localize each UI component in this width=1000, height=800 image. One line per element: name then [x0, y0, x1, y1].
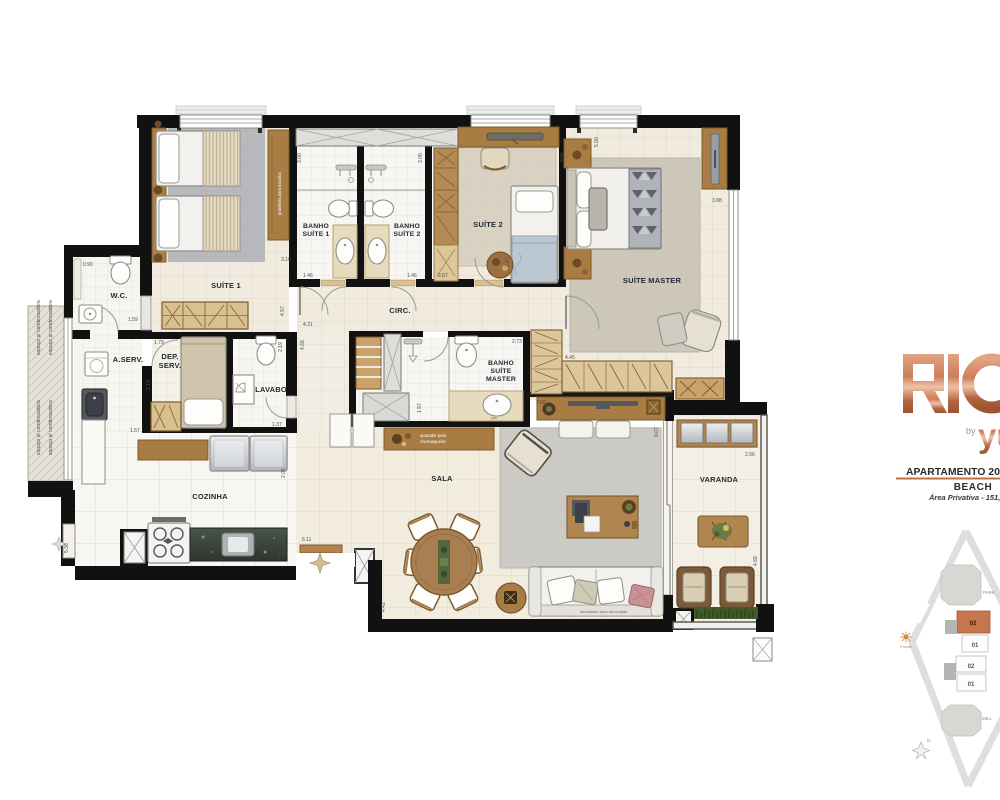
svg-text:Área Privativa - 151,4: Área Privativa - 151,4 — [928, 493, 1000, 502]
svg-text:2.73: 2.73 — [512, 339, 522, 345]
svg-text:MILL: MILL — [982, 716, 993, 721]
svg-text:1.79: 1.79 — [154, 340, 164, 346]
svg-text:3.05: 3.05 — [418, 153, 424, 163]
svg-text:2.19: 2.19 — [146, 380, 152, 390]
svg-text:4.45: 4.45 — [565, 355, 575, 361]
svg-text:BANHO: BANHO — [394, 223, 420, 230]
svg-text:1.46: 1.46 — [407, 273, 417, 279]
svg-text:churrasqueira: churrasqueira — [420, 439, 446, 444]
svg-text:BANHO: BANHO — [488, 360, 514, 367]
svg-text:2.87: 2.87 — [505, 257, 511, 267]
svg-text:pia: pia — [491, 415, 497, 420]
svg-text:CIRC.: CIRC. — [389, 306, 410, 315]
svg-text:5.90: 5.90 — [594, 137, 600, 147]
svg-text:SALA: SALA — [431, 474, 453, 483]
svg-text:Poente: Poente — [900, 645, 912, 649]
svg-text:1.97: 1.97 — [417, 403, 423, 413]
svg-text:SUÍTE 1: SUÍTE 1 — [302, 229, 329, 238]
svg-text:4.42: 4.42 — [381, 602, 387, 612]
svg-text:2.05: 2.05 — [281, 468, 287, 478]
svg-text:3.56: 3.56 — [560, 152, 566, 162]
svg-text:espaço p/ condensadora: espaço p/ condensadora — [36, 300, 42, 355]
svg-text:SUÍTE 2: SUÍTE 2 — [473, 220, 503, 229]
svg-text:01: 01 — [968, 682, 975, 688]
svg-text:aparador para: aparador para — [420, 433, 447, 438]
svg-text:0.90: 0.90 — [83, 262, 93, 268]
svg-text:A.SERV.: A.SERV. — [113, 355, 144, 364]
svg-text:1.59: 1.59 — [128, 317, 138, 323]
svg-text:PARK: PARK — [983, 590, 995, 595]
svg-text:espaço p/ condensadora: espaço p/ condensadora — [48, 400, 54, 455]
svg-text:2.08: 2.08 — [536, 400, 546, 406]
svg-text:DEP.: DEP. — [161, 352, 178, 361]
svg-text:W.C.: W.C. — [110, 291, 127, 300]
svg-text:3.17: 3.17 — [278, 552, 288, 558]
svg-text:2.67: 2.67 — [438, 273, 448, 279]
svg-text:02: 02 — [970, 621, 977, 627]
svg-text:SERV.: SERV. — [159, 361, 182, 370]
svg-text:4.69: 4.69 — [753, 556, 759, 566]
svg-text:01: 01 — [972, 643, 979, 649]
svg-text:SUÍTE: SUÍTE — [490, 366, 511, 375]
svg-text:APARTAMENTO 2001 E: APARTAMENTO 2001 E — [906, 467, 1000, 478]
svg-text:by: by — [966, 426, 976, 436]
svg-text:LAVABO: LAVABO — [255, 385, 287, 394]
svg-text:4.57: 4.57 — [280, 306, 286, 316]
svg-text:espaço p/ condensadora: espaço p/ condensadora — [48, 300, 54, 355]
svg-text:2.06: 2.06 — [745, 452, 755, 458]
svg-text:4.31: 4.31 — [303, 322, 313, 328]
svg-text:2.19: 2.19 — [278, 342, 284, 352]
svg-text:espaço p/ condensadora: espaço p/ condensadora — [36, 400, 42, 455]
svg-text:1.46: 1.46 — [303, 273, 313, 279]
svg-text:BANHO: BANHO — [303, 223, 329, 230]
svg-text:BEACH: BEACH — [954, 482, 993, 493]
svg-text:3.16: 3.16 — [281, 257, 291, 263]
svg-text:4.68: 4.68 — [300, 340, 306, 350]
svg-text:yu: yu — [978, 417, 1000, 454]
svg-text:1.57: 1.57 — [130, 428, 140, 434]
svg-text:VARANDA: VARANDA — [700, 475, 739, 484]
svg-text:02: 02 — [968, 664, 975, 670]
svg-text:almofadas para decoração: almofadas para decoração — [580, 609, 628, 614]
svg-text:3.00: 3.00 — [297, 153, 303, 163]
svg-text:N: N — [927, 738, 930, 743]
svg-text:prateleira para estudos: prateleira para estudos — [277, 172, 282, 215]
svg-text:MASTER: MASTER — [486, 376, 516, 383]
svg-text:SUÍTE 2: SUÍTE 2 — [393, 229, 420, 238]
svg-text:9.07: 9.07 — [654, 427, 660, 437]
svg-text:1.37: 1.37 — [272, 422, 282, 428]
svg-text:SUÍTE MASTER: SUÍTE MASTER — [623, 276, 682, 285]
svg-text:6.11: 6.11 — [302, 537, 312, 543]
svg-text:SUÍTE 1: SUÍTE 1 — [211, 281, 241, 290]
svg-text:3.88: 3.88 — [712, 198, 722, 204]
svg-text:5.36: 5.36 — [64, 543, 70, 553]
svg-text:COZINHA: COZINHA — [192, 492, 228, 501]
